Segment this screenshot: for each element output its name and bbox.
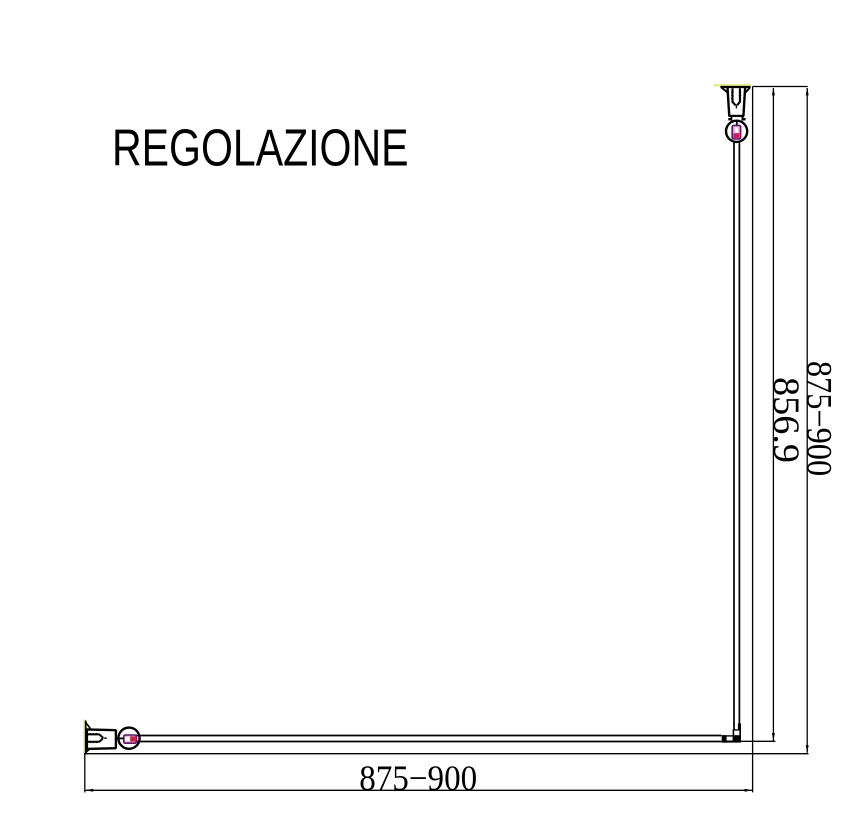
svg-text:875−900: 875−900	[359, 758, 477, 798]
svg-text:REGOLAZIONE: REGOLAZIONE	[112, 119, 409, 177]
svg-text:875−900: 875−900	[800, 361, 840, 476]
